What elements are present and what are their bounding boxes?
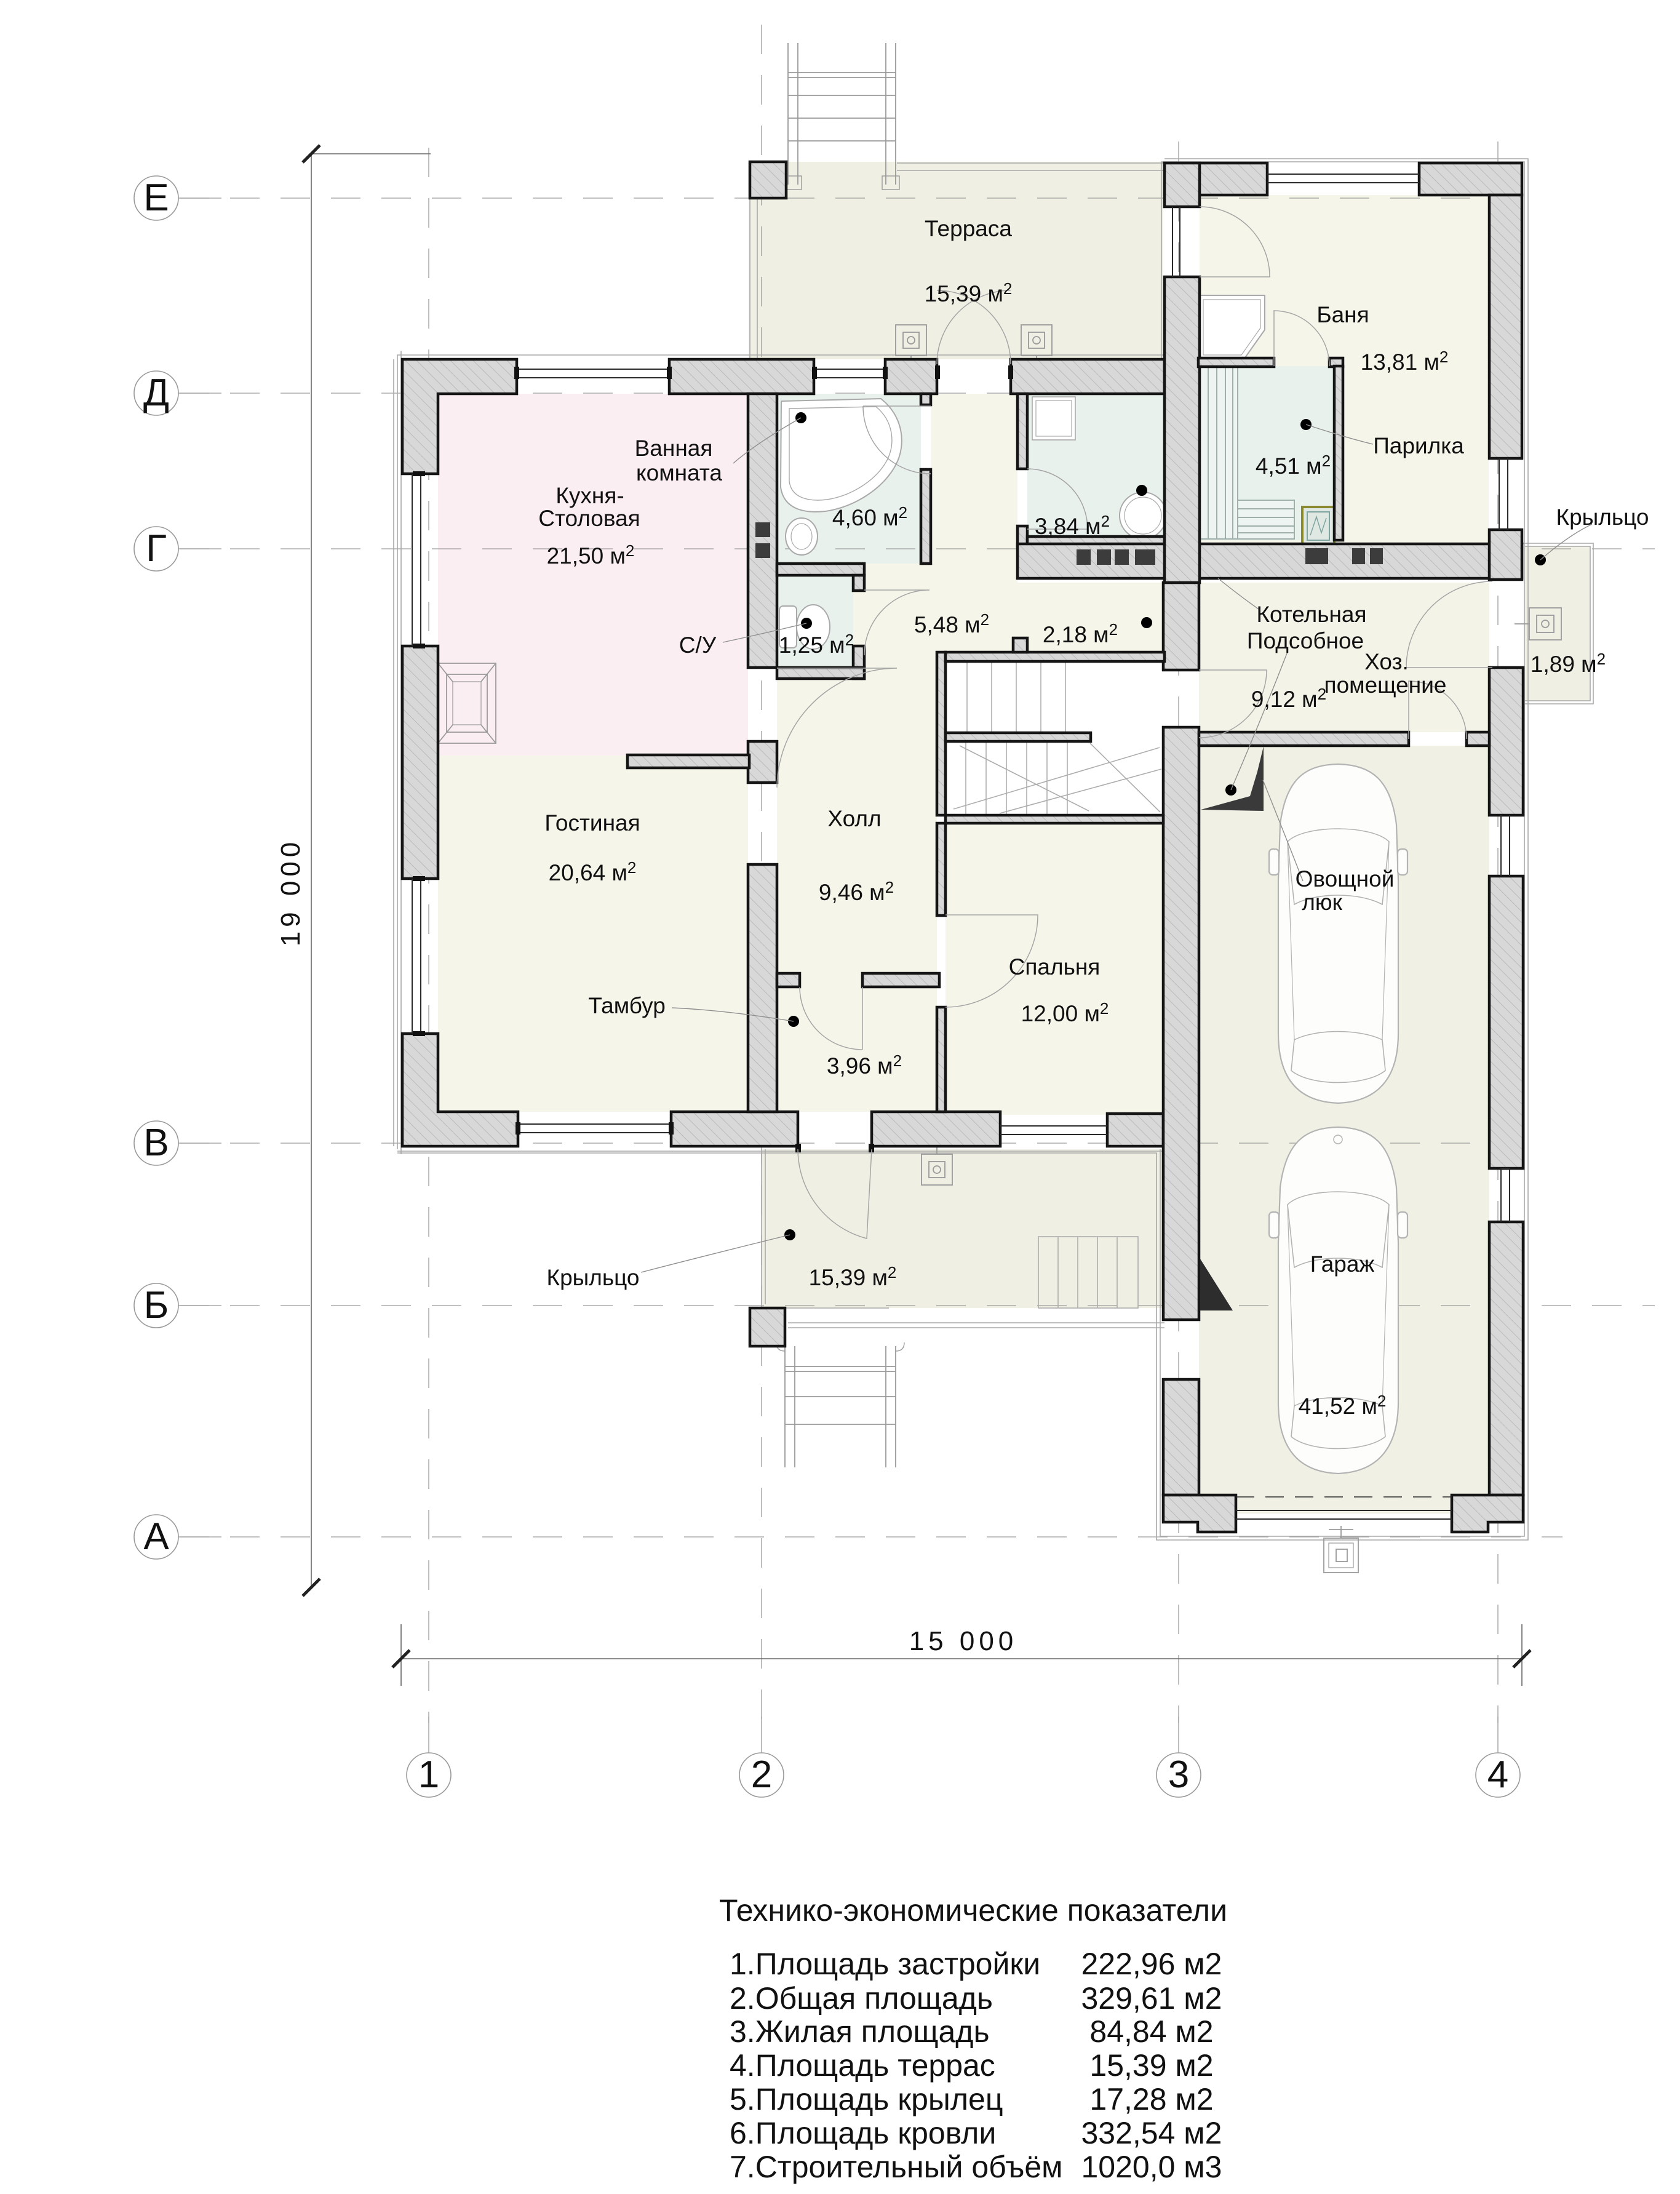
svg-text:Е: Е [143,177,169,219]
svg-text:3.Жилая площадь: 3.Жилая площадь [730,2014,990,2049]
svg-text:4,60 м2: 4,60 м2 [832,503,907,530]
svg-text:4: 4 [1487,1753,1508,1796]
svg-text:1.Площадь застройки: 1.Площадь застройки [730,1947,1040,1981]
svg-text:15,39 м2: 15,39 м2 [1089,2048,1213,2083]
svg-text:2: 2 [751,1753,772,1796]
svg-text:6.Площадь кровли: 6.Площадь кровли [730,2116,996,2150]
svg-text:15 000: 15 000 [909,1626,1018,1656]
svg-text:1020,0 м3: 1020,0 м3 [1081,2150,1222,2184]
svg-text:Технико-экономические показате: Технико-экономические показатели [719,1893,1227,1928]
svg-text:Парилка: Парилка [1373,433,1464,458]
svg-text:1,25 м2: 1,25 м2 [779,631,854,658]
svg-text:Кухня-: Кухня- [555,483,624,508]
svg-text:Б: Б [144,1284,169,1326]
svg-text:Крыльцо: Крыльцо [547,1265,640,1290]
svg-text:помещение: помещение [1324,672,1447,698]
svg-text:Г: Г [146,527,167,570]
svg-text:3: 3 [1168,1753,1189,1796]
svg-text:2,18 м2: 2,18 м2 [1043,620,1118,647]
svg-text:21,50 м2: 21,50 м2 [547,541,635,568]
svg-text:комната: комната [636,460,722,485]
svg-text:332,54 м2: 332,54 м2 [1081,2116,1222,2150]
svg-text:Терраса: Терраса [925,216,1012,241]
svg-text:Столовая: Столовая [538,506,640,531]
svg-text:329,61 м2: 329,61 м2 [1081,1981,1222,2016]
svg-text:41,52 м2: 41,52 м2 [1299,1392,1387,1419]
svg-text:Тамбур: Тамбур [588,993,666,1018]
svg-text:13,81 м2: 13,81 м2 [1361,348,1449,375]
svg-text:Д: Д [143,372,169,414]
svg-text:В: В [143,1122,169,1164]
svg-text:А: А [143,1515,169,1558]
svg-text:7.Строительный объём: 7.Строительный объём [730,2150,1063,2184]
svg-text:Баня: Баня [1316,302,1369,327]
svg-text:Гараж: Гараж [1310,1251,1375,1277]
svg-text:2.Общая площадь: 2.Общая площадь [730,1981,993,2016]
svg-text:15,39 м2: 15,39 м2 [809,1263,897,1290]
svg-text:19 000: 19 000 [276,838,306,947]
svg-text:4,51 м2: 4,51 м2 [1256,452,1331,479]
svg-text:5.Площадь крылец: 5.Площадь крылец [730,2082,1003,2116]
svg-text:9,12 м2: 9,12 м2 [1251,685,1326,712]
svg-text:Спальня: Спальня [1009,954,1101,979]
svg-text:3,96 м2: 3,96 м2 [827,1051,902,1079]
svg-text:1: 1 [418,1753,439,1796]
svg-text:12,00 м2: 12,00 м2 [1021,999,1109,1026]
svg-text:Гостиная: Гостиная [544,810,640,836]
svg-text:Подсобное: Подсобное [1247,628,1364,653]
svg-text:Хоз.: Хоз. [1364,649,1409,674]
svg-text:5,48 м2: 5,48 м2 [914,610,989,637]
svg-text:84,84 м2: 84,84 м2 [1089,2014,1213,2049]
svg-text:Крыльцо: Крыльцо [1556,505,1649,530]
svg-text:9,46 м2: 9,46 м2 [819,878,894,905]
svg-text:Холл: Холл [827,806,881,831]
svg-text:20,64 м2: 20,64 м2 [549,858,637,885]
svg-text:Ванная: Ванная [635,436,713,461]
svg-text:4.Площадь террас: 4.Площадь террас [730,2048,995,2083]
svg-text:3,84 м2: 3,84 м2 [1035,512,1110,539]
svg-text:222,96 м2: 222,96 м2 [1081,1947,1222,1981]
svg-text:1,89 м2: 1,89 м2 [1531,650,1606,677]
svg-text:17,28 м2: 17,28 м2 [1089,2082,1213,2116]
svg-text:15,39 м2: 15,39 м2 [925,279,1013,306]
svg-text:С/У: С/У [679,632,717,658]
svg-text:Овощной: Овощной [1296,866,1395,892]
svg-text:люк: люк [1302,890,1342,915]
svg-text:Котельная: Котельная [1256,602,1366,627]
